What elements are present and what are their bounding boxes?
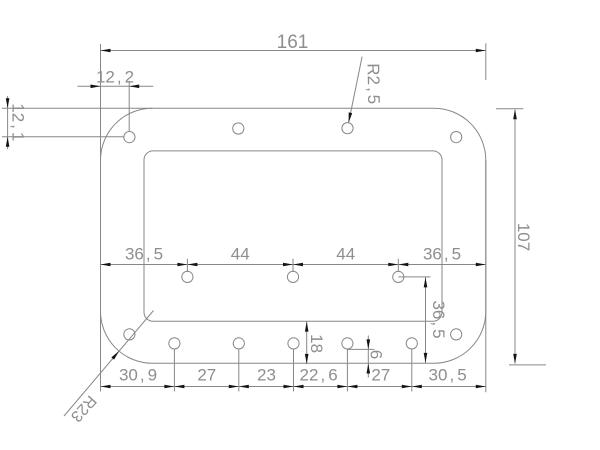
svg-text:6: 6 [366, 350, 385, 359]
svg-text:27: 27 [371, 366, 390, 385]
svg-text:18: 18 [307, 334, 326, 353]
svg-text:107: 107 [514, 223, 533, 251]
svg-text:23: 23 [257, 366, 276, 385]
svg-text:161: 161 [277, 32, 309, 53]
svg-text:27: 27 [197, 366, 216, 385]
svg-text:R2,5: R2,5 [363, 63, 383, 104]
svg-text:44: 44 [231, 245, 250, 264]
svg-text:44: 44 [336, 245, 355, 264]
